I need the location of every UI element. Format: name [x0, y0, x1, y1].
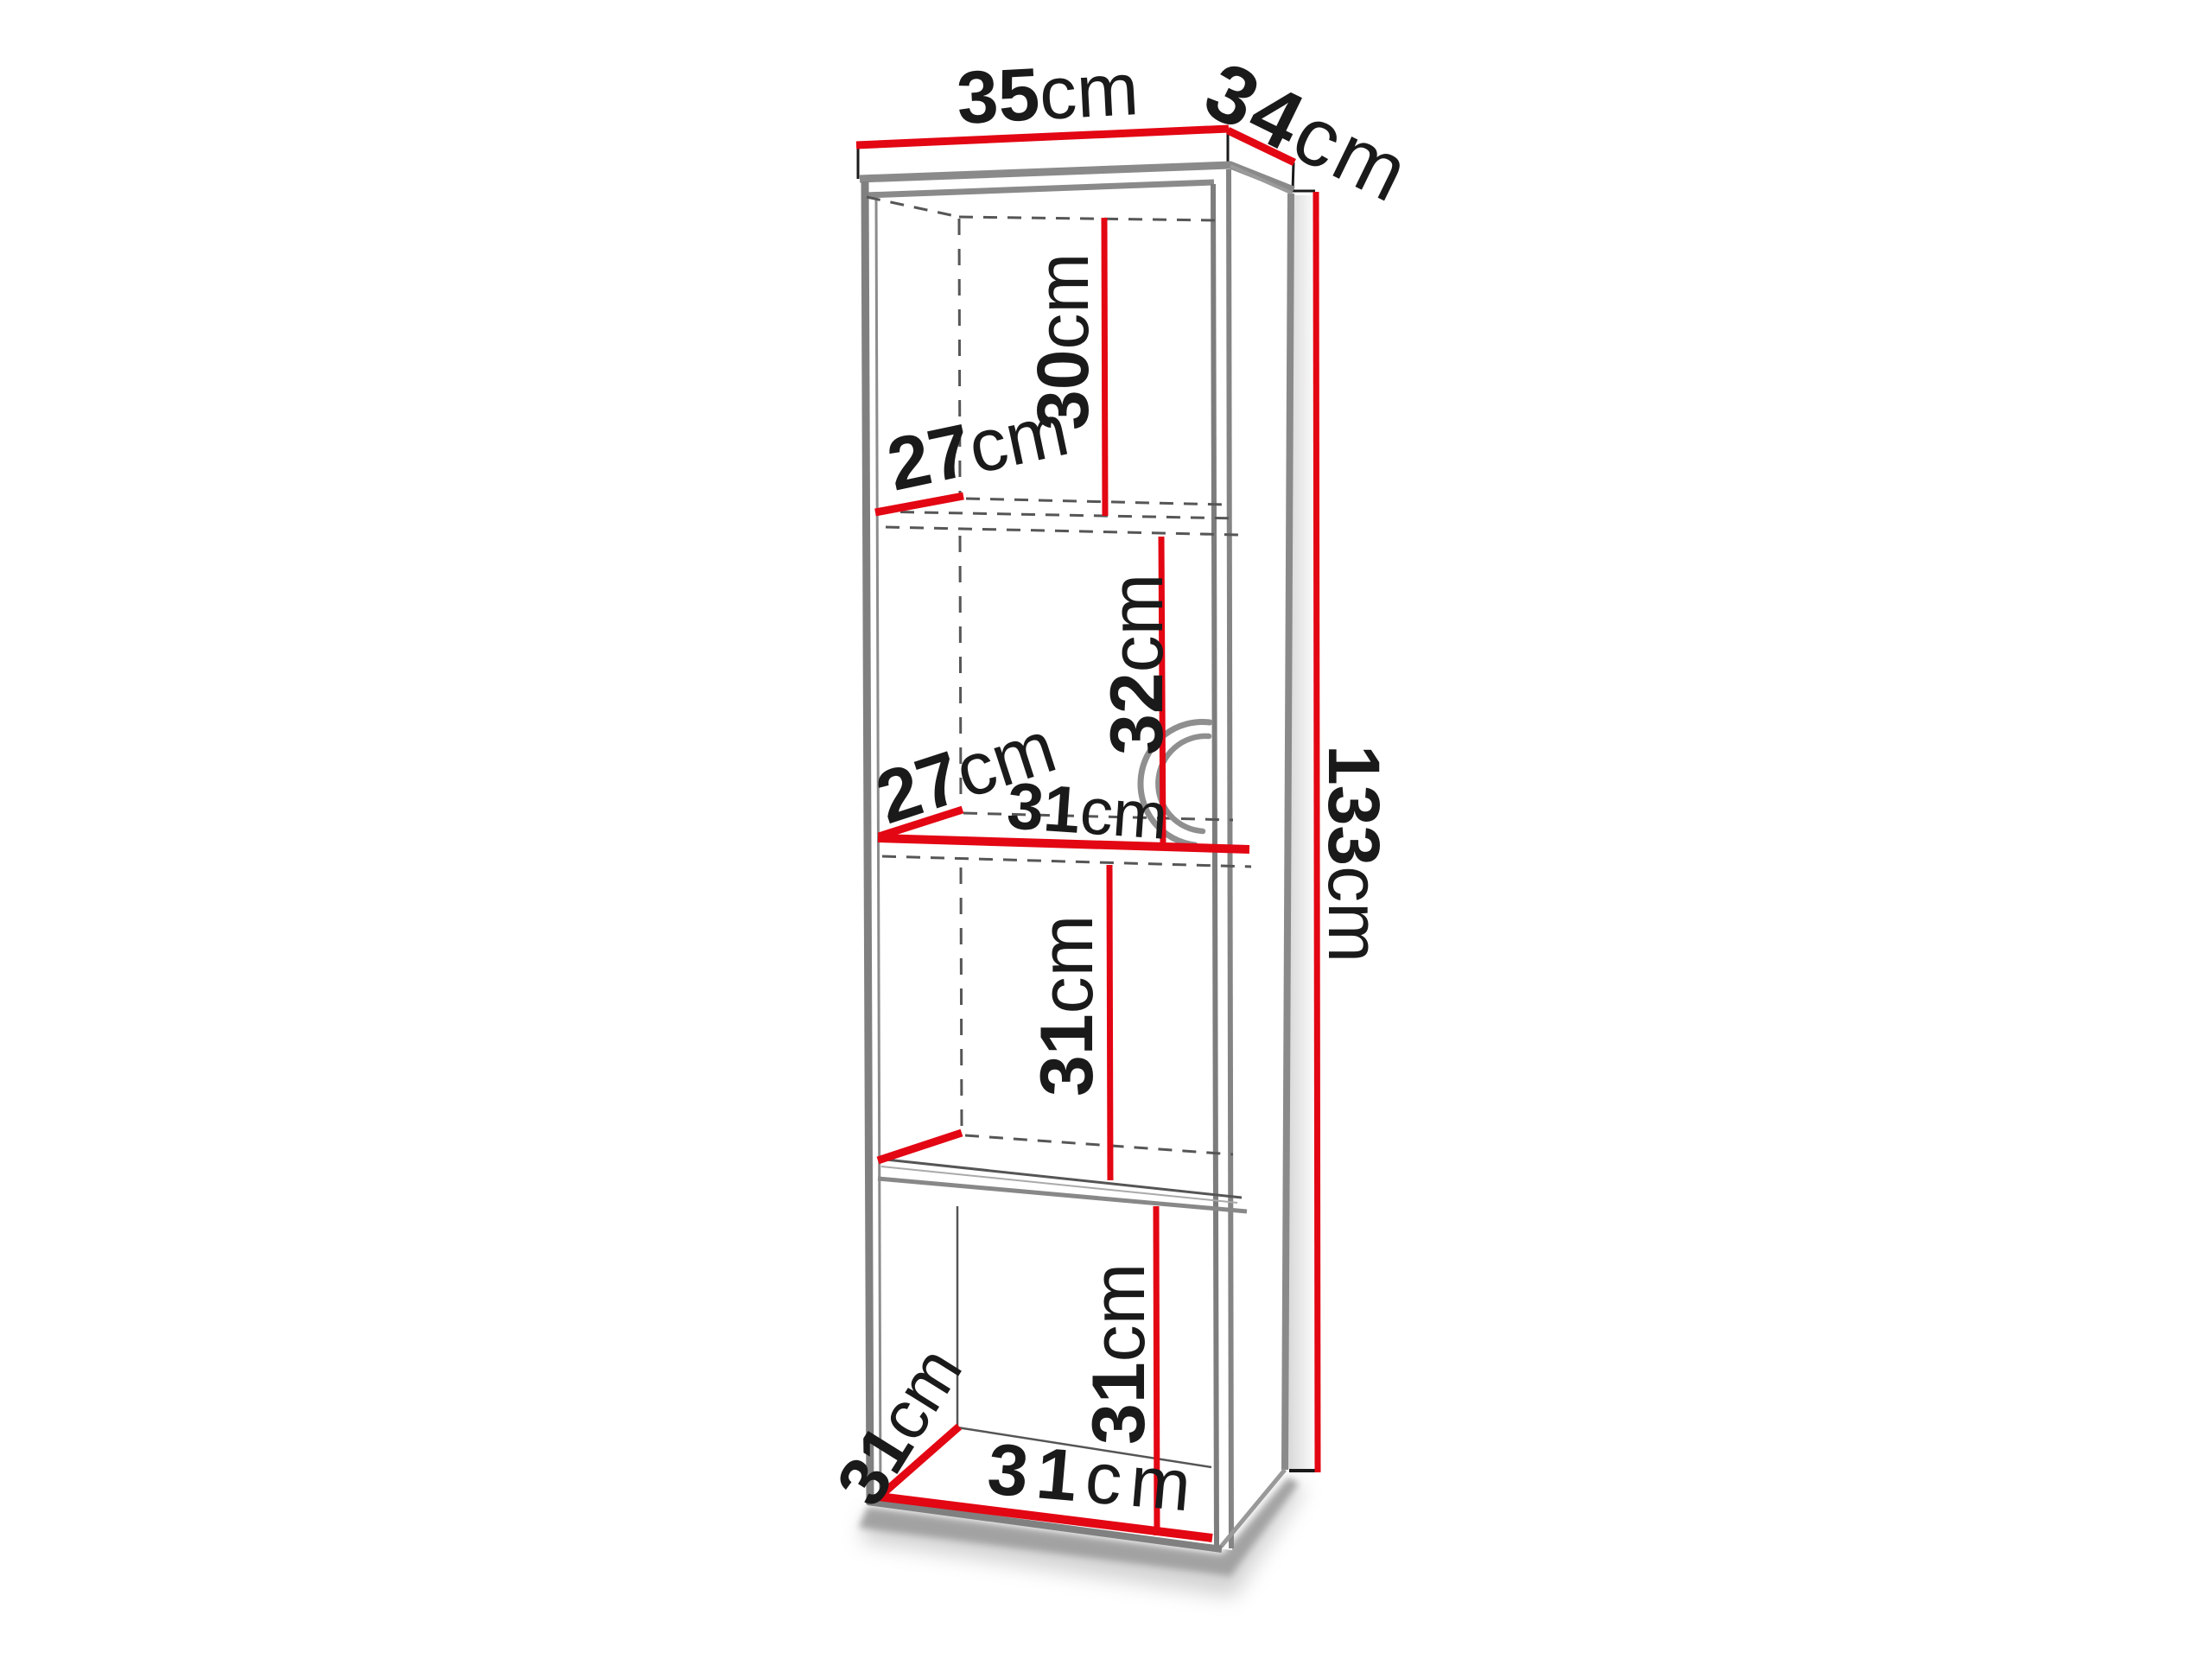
svg-text:31cm: 31cm [1026, 915, 1109, 1096]
svg-text:32cm: 32cm [1096, 574, 1179, 755]
svg-text:31cm: 31cm [1077, 1263, 1160, 1445]
svg-text:35cm: 35cm [955, 48, 1141, 140]
svg-text:133cm: 133cm [1313, 745, 1395, 963]
svg-text:31cm: 31cm [1005, 769, 1170, 854]
